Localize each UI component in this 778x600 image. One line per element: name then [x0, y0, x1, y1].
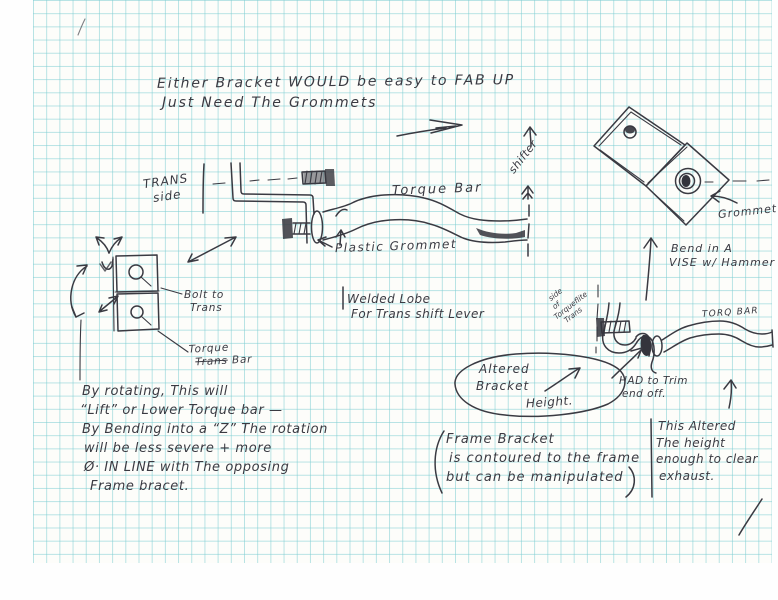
altered-oval-line1: Altered [479, 362, 530, 377]
altered-right-line3: enough to clear [656, 451, 758, 468]
bolt-to-trans-label: Bolt to Trans [184, 289, 224, 315]
corner-pen-stroke [739, 499, 762, 535]
altered-oval-line2: Bracket [476, 379, 529, 394]
altered-right-line1: This Altered [658, 418, 758, 435]
grommet-arrow [711, 191, 737, 203]
bend-vise-note: Bend in A VISE w/ Hammer [669, 242, 775, 270]
torque-bar-label: Torque Bar [392, 180, 483, 199]
flow-arrow-right [397, 120, 462, 136]
trans-side-reference-line [203, 164, 297, 213]
stray-mark [78, 19, 85, 35]
trim-line1: HAD to Trim [619, 375, 688, 388]
welded-lobe-line2: For Trans shift Lever [351, 307, 484, 322]
rotating-line1: By rotating, This will [82, 382, 328, 401]
torque-trans-bar-label: Torque Trans Bar [188, 340, 252, 370]
bolt-to-trans-line2: Trans [190, 302, 224, 315]
altered-right-line4: exhaust. [659, 468, 758, 485]
header-note-line1: Either Bracket WOULD be easy to FAB UP [157, 72, 515, 93]
rotating-line3: By Bending into a “Z” The rotation [82, 420, 328, 439]
altered-height-note: This Altered The height enough to clear … [656, 418, 758, 484]
rotating-line5: Ø· IN LINE with The opposing [84, 458, 328, 477]
rotating-line2: “Lift” or Lower Torque bar — [80, 401, 328, 420]
welded-lobe-line1: Welded Lobe [347, 292, 484, 307]
altered-height-arrow [724, 380, 736, 408]
trim-note: HAD to Trim end off. [619, 375, 688, 401]
frame-note-line2: is contoured to the frame [449, 449, 640, 468]
bend-vise-line1: Bend in A [671, 242, 775, 256]
sketch-page: Either Bracket WOULD be easy to FAB UP J… [0, 0, 778, 600]
trans-bracket-drawing [113, 255, 159, 331]
welded-lobe-note: Welded Lobe For Trans shift Lever [347, 292, 484, 322]
rotating-note: By rotating, This will “Lift” or Lower T… [80, 382, 328, 496]
torq-bar-drawing [662, 321, 773, 352]
rotating-line6: Frame bracet. [90, 477, 328, 496]
rotating-line4: will be less severe + more [84, 439, 328, 458]
frame-note-line3: but can be manipulated [446, 468, 640, 487]
altered-right-line2: The height [656, 435, 758, 452]
bolt-to-trans-line1: Bolt to [184, 289, 224, 302]
bend-vise-line2: VISE w/ Hammer [669, 256, 775, 270]
side-view-bracket-drawing [596, 285, 662, 373]
frame-note-line1: Frame Bracket [446, 430, 640, 449]
bend-in-vise-arrow [644, 238, 657, 300]
trans-side-label: TRANS side [142, 171, 191, 207]
frame-bracket-note: Frame Bracket is contoured to the frame … [446, 430, 640, 487]
struck-word: Trans [195, 355, 228, 369]
header-note-line2: Just Need The Grommets [162, 95, 377, 113]
trim-line2: end off. [622, 388, 688, 401]
bar-word: Bar [232, 353, 253, 366]
loose-bolt-drawing [302, 169, 335, 186]
